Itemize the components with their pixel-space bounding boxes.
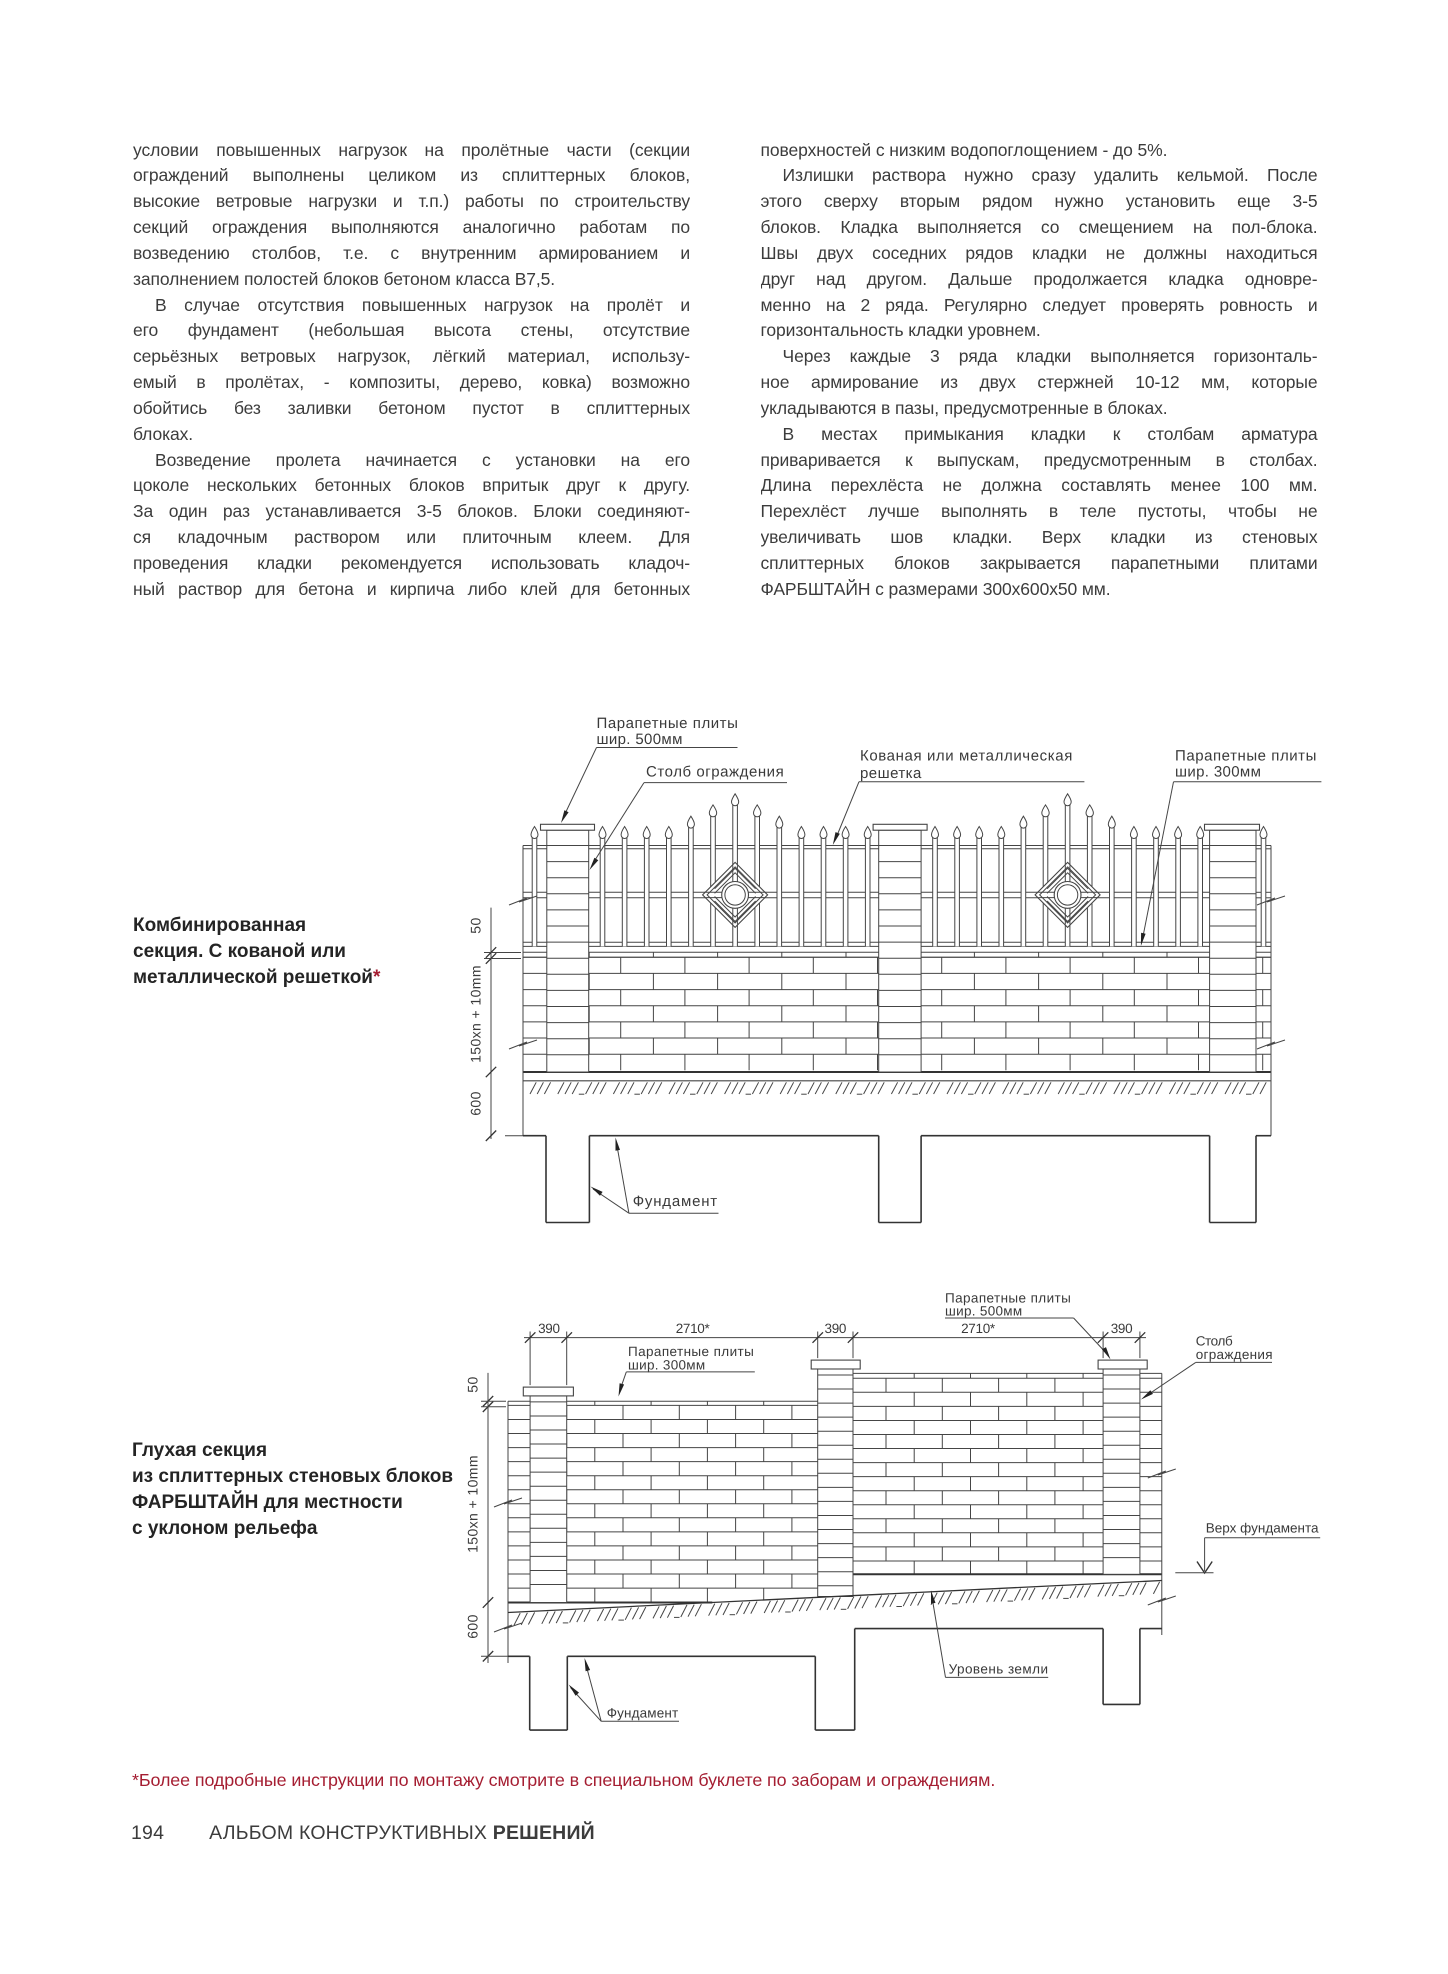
svg-text:Парапетные плиты: Парапетные плиты [597, 715, 739, 732]
svg-text:шир. 500мм: шир. 500мм [597, 731, 683, 748]
svg-text:Уровень земли: Уровень земли [949, 1661, 1049, 1676]
svg-text:150xn + 10mm: 150xn + 10mm [465, 1455, 481, 1553]
svg-text:600: 600 [468, 1091, 484, 1116]
svg-text:Столб ограждения: Столб ограждения [646, 764, 784, 781]
svg-text:390: 390 [824, 1321, 846, 1336]
svg-text:600: 600 [465, 1614, 481, 1639]
svg-text:шир. 300мм: шир. 300мм [1175, 764, 1261, 781]
svg-text:50: 50 [468, 917, 484, 933]
svg-text:390: 390 [1111, 1321, 1133, 1336]
svg-text:Фундамент: Фундамент [633, 1193, 718, 1210]
svg-text:50: 50 [465, 1376, 481, 1392]
svg-text:2710*: 2710* [676, 1321, 711, 1336]
svg-text:Верх фундамента: Верх фундамента [1206, 1521, 1319, 1536]
svg-text:решетка: решетка [860, 765, 922, 782]
svg-text:шир. 300мм: шир. 300мм [628, 1357, 705, 1372]
svg-text:шир. 500мм: шир. 500мм [945, 1303, 1022, 1318]
svg-text:Кованая или металлическая: Кованая или металлическая [860, 748, 1073, 765]
svg-text:Парапетные плиты: Парапетные плиты [1175, 748, 1317, 765]
svg-text:150xn + 10mm: 150xn + 10mm [468, 965, 484, 1063]
svg-text:Фундамент: Фундамент [607, 1705, 679, 1720]
svg-text:2710*: 2710* [961, 1321, 996, 1336]
svg-text:ограждения: ограждения [1196, 1347, 1273, 1362]
svg-text:390: 390 [538, 1321, 560, 1336]
